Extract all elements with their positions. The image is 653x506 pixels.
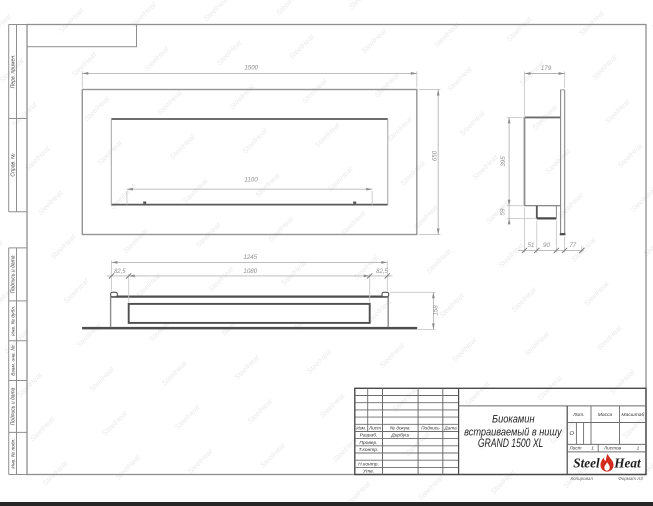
svg-text:Масштаб: Масштаб <box>621 412 644 418</box>
svg-text:179: 179 <box>541 65 552 72</box>
svg-text:SteelHeat: SteelHeat <box>505 14 534 43</box>
svg-text:1100: 1100 <box>244 177 258 184</box>
svg-text:SteelHeat: SteelHeat <box>95 138 124 167</box>
svg-text:1: 1 <box>591 446 594 451</box>
svg-text:SteelHeat: SteelHeat <box>41 458 70 487</box>
svg-text:SteelHeat: SteelHeat <box>0 11 14 40</box>
svg-text:SteelHeat: SteelHeat <box>411 202 440 231</box>
svg-text:82,5: 82,5 <box>114 269 126 275</box>
svg-text:SteelHeat: SteelHeat <box>300 76 329 105</box>
svg-text:158: 158 <box>432 305 439 316</box>
svg-text:SteelHeat: SteelHeat <box>577 8 606 37</box>
svg-text:SteelHeat: SteelHeat <box>202 0 231 23</box>
svg-text:Steel: Steel <box>573 455 600 470</box>
svg-text:SteelHeat: SteelHeat <box>377 340 406 369</box>
svg-text:SteelHeat: SteelHeat <box>160 358 189 387</box>
svg-text:1080: 1080 <box>243 268 257 275</box>
svg-text:SteelHeat: SteelHeat <box>489 467 518 496</box>
svg-text:SteelHeat: SteelHeat <box>437 290 466 319</box>
svg-text:SteelHeat: SteelHeat <box>416 473 445 502</box>
svg-text:SteelHeat: SteelHeat <box>227 82 256 111</box>
svg-text:SteelHeat: SteelHeat <box>616 140 645 169</box>
svg-text:SteelHeat: SteelHeat <box>313 120 342 149</box>
svg-text:SteelHeat: SteelHeat <box>100 408 129 437</box>
svg-text:SteelHeat: SteelHeat <box>569 235 598 264</box>
svg-text:SteelHeat: SteelHeat <box>215 38 244 67</box>
svg-text:SteelHeat: SteelHeat <box>450 335 479 364</box>
svg-text:встраиваемый в нишу: встраиваемый в нишу <box>464 427 563 439</box>
svg-text:GRAND 1500 XL: GRAND 1500 XL <box>478 438 544 450</box>
svg-text:SteelHeat: SteelHeat <box>360 26 389 55</box>
svg-text:SteelHeat: SteelHeat <box>0 238 6 267</box>
svg-text:SteelHeat: SteelHeat <box>142 44 171 73</box>
svg-text:1245: 1245 <box>243 254 257 261</box>
svg-text:SteelHeat: SteelHeat <box>471 152 500 181</box>
svg-text:Подпись и дата: Подпись и дата <box>11 387 17 425</box>
svg-text:SteelHeat: SteelHeat <box>181 176 210 205</box>
svg-text:Подпись: Подпись <box>421 425 440 430</box>
svg-text:SteelHeat: SteelHeat <box>134 270 163 299</box>
svg-text:SteelHeat: SteelHeat <box>108 182 137 211</box>
svg-text:Подпись и дата: Подпись и дата <box>11 255 17 293</box>
svg-text:SteelHeat: SteelHeat <box>240 126 269 155</box>
svg-text:Дата: Дата <box>443 425 457 430</box>
svg-text:77: 77 <box>569 242 576 249</box>
svg-text:SteelHeat: SteelHeat <box>258 440 287 469</box>
svg-text:SteelHeat: SteelHeat <box>424 246 453 275</box>
svg-text:SteelHeat: SteelHeat <box>82 94 111 123</box>
svg-text:SteelHeat: SteelHeat <box>70 49 99 78</box>
svg-text:О: О <box>570 431 575 437</box>
svg-text:№ докум.: № докум. <box>390 425 411 430</box>
svg-text:Взам. инв. №: Взам. инв. № <box>10 345 16 375</box>
svg-text:90: 90 <box>543 242 550 249</box>
svg-text:SteelHeat: SteelHeat <box>274 0 303 17</box>
svg-text:SteelHeat: SteelHeat <box>305 346 334 375</box>
svg-text:Дербуш: Дербуш <box>390 433 409 439</box>
svg-text:SteelHeat: SteelHeat <box>173 402 202 431</box>
svg-text:Лист: Лист <box>368 425 381 430</box>
svg-text:SteelHeat: SteelHeat <box>517 58 546 87</box>
svg-text:Инв. № подл.: Инв. № подл. <box>10 438 16 468</box>
svg-text:Heat: Heat <box>613 455 642 470</box>
svg-text:SteelHeat: SteelHeat <box>458 108 487 137</box>
svg-text:SteelHeat: SteelHeat <box>266 214 295 243</box>
svg-text:SteelHeat: SteelHeat <box>398 158 427 187</box>
svg-text:SteelHeat: SteelHeat <box>543 146 572 175</box>
svg-text:SteelHeat: SteelHeat <box>463 379 492 408</box>
svg-text:SteelHeat: SteelHeat <box>629 185 653 214</box>
svg-text:Н.контр.: Н.контр. <box>358 461 379 467</box>
svg-text:Лит.: Лит. <box>572 412 584 418</box>
svg-text:SteelHeat: SteelHeat <box>287 32 316 61</box>
svg-text:SteelHeat: SteelHeat <box>318 390 347 419</box>
svg-text:SteelHeat: SteelHeat <box>57 5 86 34</box>
svg-text:395: 395 <box>500 156 507 167</box>
svg-text:SteelHeat: SteelHeat <box>445 64 474 93</box>
svg-text:SteelHeat: SteelHeat <box>10 99 39 128</box>
svg-text:SteelHeat: SteelHeat <box>535 373 564 402</box>
svg-text:SteelHeat: SteelHeat <box>582 279 611 308</box>
svg-text:Листов: Листов <box>603 446 622 451</box>
svg-text:SteelHeat: SteelHeat <box>232 352 261 381</box>
svg-text:SteelHeat: SteelHeat <box>121 226 150 255</box>
svg-text:Провер.: Провер. <box>359 440 377 446</box>
svg-text:Разраб.: Разраб. <box>360 433 378 439</box>
svg-text:SteelHeat: SteelHeat <box>168 132 197 161</box>
svg-text:Инв. № дубл.: Инв. № дубл. <box>10 306 16 336</box>
svg-text:1500: 1500 <box>244 65 258 72</box>
svg-text:SteelHeat: SteelHeat <box>339 208 368 237</box>
svg-text:51: 51 <box>527 242 534 249</box>
svg-text:1: 1 <box>637 446 640 451</box>
svg-text:SteelHeat: SteelHeat <box>155 88 184 117</box>
svg-text:Копировал: Копировал <box>571 476 594 481</box>
svg-text:Лист: Лист <box>568 446 581 451</box>
svg-text:SteelHeat: SteelHeat <box>253 170 282 199</box>
svg-text:SteelHeat: SteelHeat <box>497 240 526 269</box>
svg-text:SteelHeat: SteelHeat <box>385 114 414 143</box>
svg-text:SteelHeat: SteelHeat <box>207 264 236 293</box>
svg-text:Биокамин: Биокамин <box>492 413 535 425</box>
svg-text:Формат А3: Формат А3 <box>618 476 643 481</box>
svg-text:SteelHeat: SteelHeat <box>36 188 65 217</box>
svg-text:SteelHeat: SteelHeat <box>87 364 116 393</box>
svg-text:SteelHeat: SteelHeat <box>608 367 637 396</box>
svg-text:Утв.: Утв. <box>363 468 374 474</box>
svg-text:SteelHeat: SteelHeat <box>113 452 142 481</box>
svg-text:SteelHeat: SteelHeat <box>352 252 381 281</box>
svg-text:SteelHeat: SteelHeat <box>15 370 44 399</box>
svg-text:SteelHeat: SteelHeat <box>595 323 624 352</box>
svg-text:SteelHeat: SteelHeat <box>49 232 78 261</box>
svg-text:Перв. примен.: Перв. примен. <box>11 54 17 88</box>
svg-text:SteelHeat: SteelHeat <box>28 414 57 443</box>
svg-text:Т.контр.: Т.контр. <box>359 447 379 453</box>
svg-text:Масса: Масса <box>598 412 613 418</box>
svg-text:SteelHeat: SteelHeat <box>509 285 538 314</box>
svg-text:SteelHeat: SteelHeat <box>603 96 632 125</box>
svg-text:SteelHeat: SteelHeat <box>347 0 376 11</box>
svg-text:59: 59 <box>499 208 506 215</box>
svg-text:82,5: 82,5 <box>376 269 388 275</box>
svg-text:SteelHeat: SteelHeat <box>74 320 103 349</box>
svg-text:SteelHeat: SteelHeat <box>62 276 91 305</box>
svg-text:Изм.: Изм. <box>356 425 366 430</box>
svg-text:SteelHeat: SteelHeat <box>186 446 215 475</box>
svg-text:SteelHeat: SteelHeat <box>590 52 619 81</box>
svg-text:SteelHeat: SteelHeat <box>522 329 551 358</box>
svg-text:SteelHeat: SteelHeat <box>650 2 653 31</box>
svg-text:SteelHeat: SteelHeat <box>642 229 653 258</box>
svg-text:SteelHeat: SteelHeat <box>245 396 274 425</box>
svg-text:Справ. №: Справ. № <box>11 153 17 177</box>
svg-text:SteelHeat: SteelHeat <box>372 70 401 99</box>
svg-text:650: 650 <box>432 150 439 161</box>
